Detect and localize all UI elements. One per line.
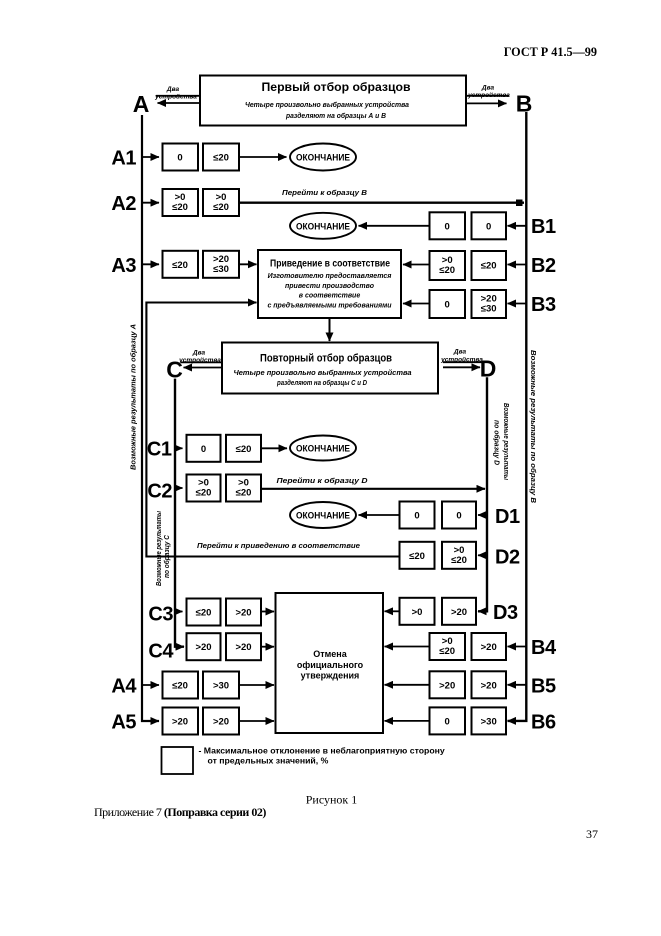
- svg-text:A2: A2: [111, 193, 136, 215]
- svg-text:Два: Два: [166, 86, 180, 93]
- svg-text:0: 0: [201, 444, 206, 455]
- svg-text:0: 0: [177, 153, 182, 164]
- svg-text:в соответствие: в соответствие: [299, 293, 361, 300]
- svg-text:>0: >0: [412, 607, 423, 618]
- svg-text:по образцу D: по образцу D: [493, 420, 501, 465]
- svg-text:Первый отбор образцов: Первый отбор образцов: [262, 80, 411, 94]
- svg-text:C4: C4: [148, 641, 174, 663]
- svg-text:ОКОНЧАНИЕ: ОКОНЧАНИЕ: [296, 153, 350, 163]
- svg-text:A3: A3: [111, 255, 136, 277]
- svg-text:утверждения: утверждения: [301, 671, 360, 681]
- svg-text:B2: B2: [531, 255, 556, 277]
- svg-text:A4: A4: [111, 676, 137, 698]
- svg-text:Два: Два: [453, 349, 467, 356]
- svg-text:≤20: ≤20: [172, 202, 188, 213]
- svg-text:A1: A1: [111, 148, 136, 170]
- svg-text:≤20: ≤20: [172, 260, 188, 271]
- svg-text:37: 37: [586, 827, 598, 841]
- svg-text:Два: Два: [481, 85, 495, 92]
- svg-text:Рисунок 1: Рисунок 1: [306, 793, 358, 807]
- svg-text:A: A: [133, 91, 150, 117]
- svg-text:ОКОНЧАНИЕ: ОКОНЧАНИЕ: [296, 444, 350, 454]
- svg-text:>20: >20: [213, 717, 229, 728]
- svg-text:B6: B6: [531, 711, 556, 733]
- svg-text:≤20: ≤20: [236, 444, 252, 455]
- svg-text:>20: >20: [439, 680, 455, 691]
- svg-text:C2: C2: [147, 481, 172, 503]
- svg-text:Возможные результаты: Возможные результаты: [156, 511, 163, 586]
- svg-text:Перейти к приведению в соответ: Перейти к приведению в соответствие: [197, 541, 360, 550]
- svg-text:B3: B3: [531, 294, 556, 316]
- svg-text:D3: D3: [493, 602, 518, 624]
- svg-text:- Максимальное отклонение в не: - Максимальное отклонение в неблагоприят…: [199, 746, 445, 756]
- svg-text:C1: C1: [147, 439, 172, 461]
- svg-text:Четыре произвольно выбранных у: Четыре произвольно выбранных устройства: [234, 368, 412, 377]
- svg-text:B5: B5: [531, 675, 556, 697]
- svg-text:0: 0: [486, 221, 491, 232]
- svg-text:Перейти к образцу D: Перейти к образцу D: [277, 476, 369, 485]
- svg-text:Два: Два: [192, 350, 206, 357]
- svg-text:>20: >20: [451, 607, 467, 618]
- svg-text:B: B: [516, 91, 533, 117]
- svg-text:Изготовителю предоставляется: Изготовителю предоставляется: [268, 272, 392, 280]
- svg-text:разделяют на образцы А и В: разделяют на образцы А и В: [285, 111, 386, 120]
- svg-text:≤20: ≤20: [213, 202, 229, 213]
- svg-text:>20: >20: [481, 680, 497, 691]
- svg-text:от предельных значений, %: от предельных значений, %: [208, 756, 329, 766]
- svg-text:официального: официального: [297, 660, 364, 670]
- svg-text:≤20: ≤20: [409, 551, 425, 562]
- svg-text:>20: >20: [195, 642, 211, 653]
- svg-text:Отмена: Отмена: [313, 649, 348, 659]
- svg-text:≤30: ≤30: [481, 304, 497, 315]
- svg-text:≤20: ≤20: [196, 608, 212, 619]
- svg-text:>30: >30: [481, 716, 497, 727]
- svg-text:D2: D2: [495, 547, 520, 569]
- svg-text:≤20: ≤20: [439, 265, 455, 276]
- svg-text:>20: >20: [235, 642, 251, 653]
- svg-text:≤20: ≤20: [196, 488, 212, 499]
- svg-text:D1: D1: [495, 506, 520, 528]
- svg-text:≤20: ≤20: [451, 555, 467, 566]
- svg-text:Возможные результаты: Возможные результаты: [502, 403, 509, 480]
- svg-text:B4: B4: [531, 637, 557, 659]
- svg-text:0: 0: [456, 511, 461, 522]
- svg-text:≤20: ≤20: [439, 646, 455, 657]
- svg-text:>20: >20: [172, 717, 188, 728]
- svg-text:≤20: ≤20: [213, 153, 229, 164]
- svg-text:B1: B1: [531, 216, 556, 238]
- svg-text:разделяют на образцы C и D: разделяют на образцы C и D: [276, 378, 367, 387]
- svg-text:0: 0: [445, 716, 450, 727]
- svg-text:ОКОНЧАНИЕ: ОКОНЧАНИЕ: [296, 511, 350, 521]
- svg-text:C3: C3: [148, 604, 173, 626]
- svg-text:≤30: ≤30: [213, 264, 229, 275]
- svg-text:Возможные результаты по образц: Возможные результаты по образцу А: [130, 324, 138, 470]
- svg-text:ГОСТ Р 41.5—99: ГОСТ Р 41.5—99: [504, 45, 597, 59]
- svg-text:ОКОНЧАНИЕ: ОКОНЧАНИЕ: [296, 221, 350, 231]
- svg-text:A5: A5: [111, 712, 136, 734]
- svg-text:>20: >20: [481, 642, 497, 653]
- svg-text:Возможные результаты по образц: Возможные результаты по образцу В: [529, 350, 537, 503]
- svg-text:Приведение в соответствие: Приведение в соответствие: [270, 259, 390, 270]
- svg-text:>30: >30: [213, 681, 229, 692]
- svg-text:Четыре произвольно выбранных у: Четыре произвольно выбранных устройства: [245, 100, 409, 109]
- svg-text:Перейти к образцу В: Перейти к образцу В: [282, 188, 368, 197]
- svg-text:0: 0: [414, 511, 419, 522]
- svg-text:≤20: ≤20: [172, 681, 188, 692]
- svg-text:>20: >20: [235, 608, 251, 619]
- svg-text:с предъявляемыми требованиями: с предъявляемыми требованиями: [267, 302, 392, 310]
- svg-text:привести производство: привести производство: [285, 282, 375, 290]
- svg-text:≤20: ≤20: [481, 261, 497, 272]
- svg-text:≤20: ≤20: [236, 488, 252, 499]
- svg-text:0: 0: [445, 221, 450, 232]
- svg-text:0: 0: [445, 300, 450, 311]
- svg-text:Приложение 7 (Поправка серии 0: Приложение 7 (Поправка серии 02): [94, 805, 266, 819]
- svg-text:Повторный отбор образцов: Повторный отбор образцов: [260, 353, 392, 365]
- svg-text:по образцу C: по образцу C: [163, 534, 171, 578]
